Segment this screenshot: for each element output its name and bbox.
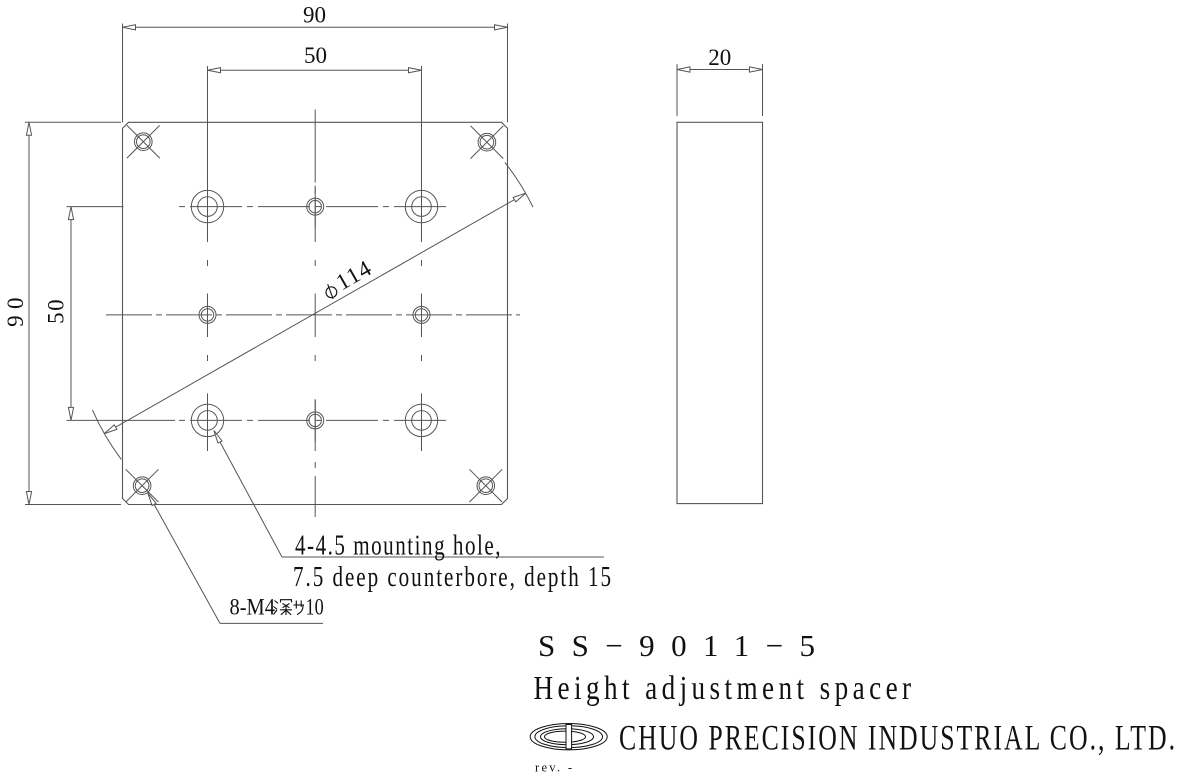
- svg-text:SS−9011−5: SS−9011−5: [538, 628, 815, 663]
- svg-text:90: 90: [303, 3, 326, 28]
- svg-text:50: 50: [44, 298, 69, 324]
- svg-text:20: 20: [708, 45, 731, 70]
- svg-text:10: 10: [306, 595, 324, 621]
- svg-text:8-M4: 8-M4: [230, 595, 276, 621]
- svg-text:Height adjustment spacer: Height adjustment spacer: [534, 670, 916, 707]
- svg-text:rev. -: rev. -: [535, 760, 572, 774]
- svg-text:4-4.5 mounting hole,: 4-4.5 mounting hole,: [295, 531, 502, 562]
- svg-text:CHUO PRECISION INDUSTRIAL CO.,: CHUO PRECISION INDUSTRIAL CO., LTD.: [619, 717, 1177, 757]
- svg-text:7.5 deep counterbore, depth 15: 7.5 deep counterbore, depth 15: [293, 562, 613, 593]
- svg-text:114: 114: [332, 255, 376, 295]
- svg-text:50: 50: [304, 43, 327, 68]
- svg-text:90: 90: [3, 291, 28, 327]
